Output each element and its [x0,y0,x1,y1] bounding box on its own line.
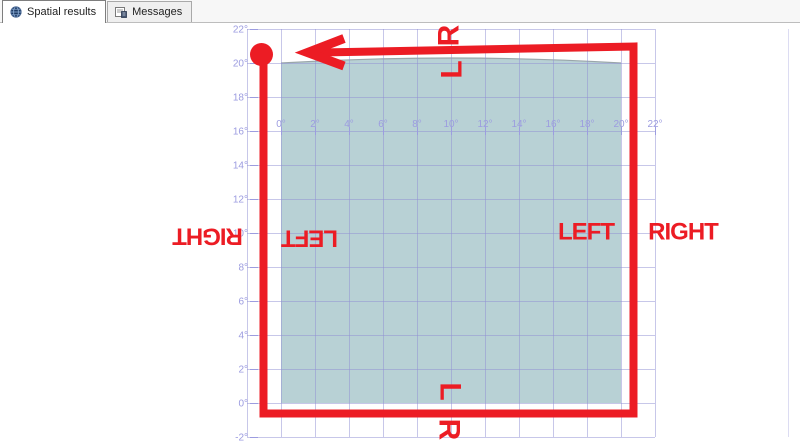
ring-side-label-right: RIGHT [172,223,243,250]
tab-label-spatial-results: Spatial results [27,6,96,18]
y-axis-tick-label: 12° [233,195,248,206]
y-axis-tick-label: 6° [238,297,248,308]
ring-side-label-left: LEFT [558,219,615,246]
y-axis-tick-label: 8° [238,263,248,274]
y-axis-tick-label: 14° [233,161,248,172]
ring-side-label-l: L [436,61,469,79]
messages-icon [115,6,127,18]
spatial-plot-canvas[interactable]: 22°20°18°16°14°12°10°8°6°4°2°0°-2°0°2°4°… [0,0,800,446]
y-axis-tick-label: 4° [238,331,248,342]
ring-start-marker [250,43,273,66]
y-axis-tick-label: 22° [233,25,248,36]
tab-messages[interactable]: Messages [107,1,192,22]
y-axis-tick-label: 0° [238,399,248,410]
results-tab-bar: Spatial results Messages [0,0,800,23]
ring-side-label-left: LEFT [281,225,338,252]
tab-label-messages: Messages [132,6,182,18]
y-axis-tick-label: 2° [238,365,248,376]
y-axis-tick-label: 18° [233,93,248,104]
ring-side-label-l: L [434,382,467,400]
globe-icon [10,6,22,18]
y-axis-tick-label: -2° [235,433,248,444]
ring-side-label-r: R [433,24,466,46]
tab-spatial-results[interactable]: Spatial results [2,0,106,23]
ring-side-label-right: RIGHT [648,219,719,246]
ring-side-label-r: R [433,419,466,441]
y-axis-tick-label: 16° [233,127,248,138]
y-axis-tick-label: 20° [233,59,248,70]
